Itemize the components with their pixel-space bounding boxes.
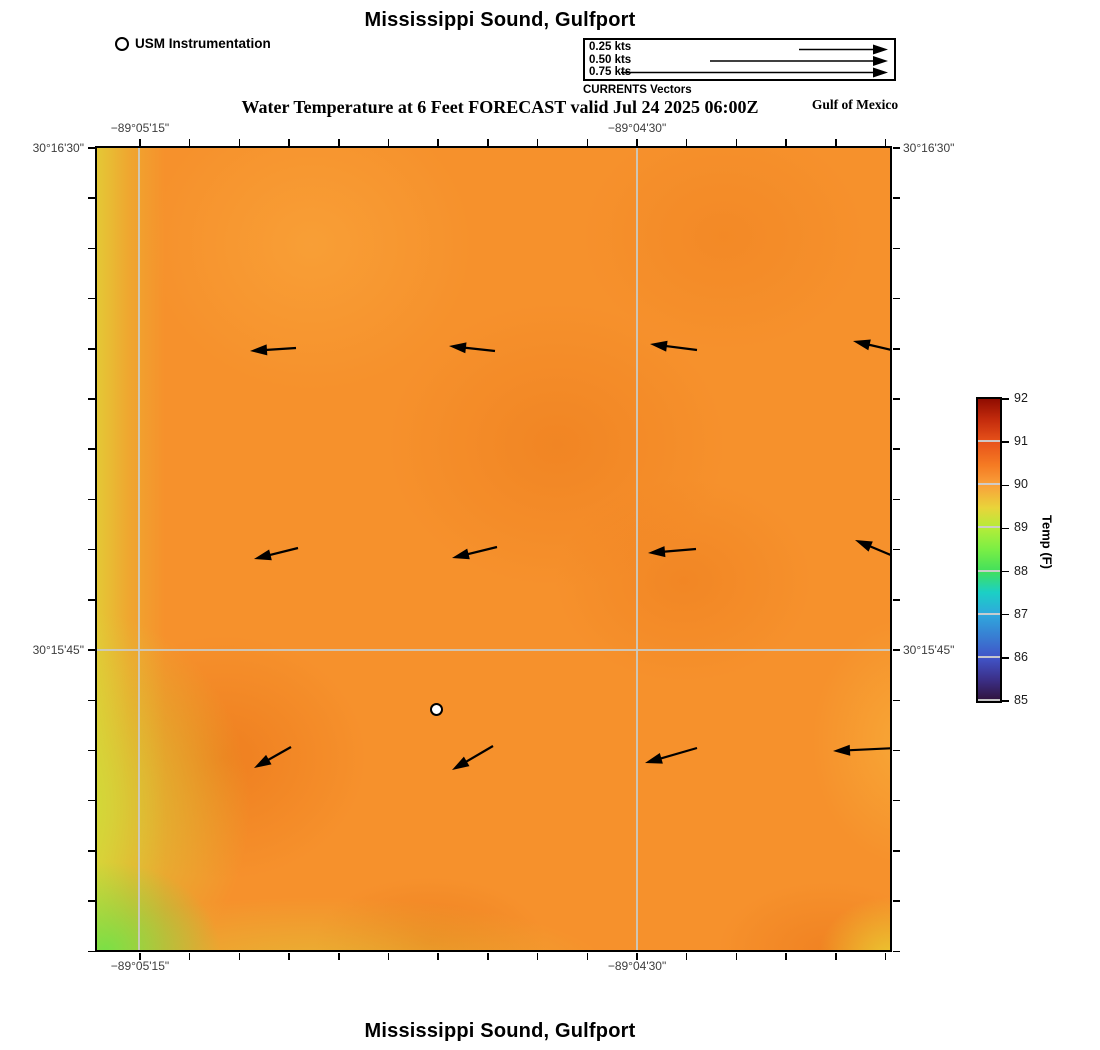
axis-tick — [88, 599, 95, 601]
axis-tick — [893, 549, 900, 551]
axis-tick — [288, 953, 290, 960]
colorbar-gridline — [978, 526, 1000, 528]
axis-tick — [88, 549, 95, 551]
colorbar-tick — [1002, 700, 1009, 702]
vector-head — [833, 744, 850, 755]
axis-tick — [893, 398, 900, 400]
axis-tick — [893, 850, 900, 852]
axis-tick — [893, 700, 900, 702]
y-axis-tick-label: 30°15'45" — [0, 643, 84, 657]
colorbar-tick — [1002, 485, 1009, 487]
bottom-title: Mississippi Sound, Gulfport — [0, 1020, 1000, 1043]
axis-tick — [893, 298, 900, 300]
axis-tick — [785, 953, 787, 960]
axis-tick — [893, 147, 900, 149]
colorbar-gridline — [978, 483, 1000, 485]
colorbar-gridline — [978, 440, 1000, 442]
vector-head — [254, 754, 271, 767]
vector-legend-arrows — [585, 40, 894, 79]
axis-tick — [893, 649, 900, 651]
axis-tick — [88, 448, 95, 450]
x-axis-tick-label: −89°04'30" — [577, 121, 697, 135]
colorbar — [976, 397, 1002, 703]
axis-tick — [88, 800, 95, 802]
axis-tick — [88, 649, 95, 651]
axis-tick — [487, 953, 489, 960]
vector-head — [853, 339, 871, 350]
vector-head — [648, 546, 665, 557]
axis-tick — [537, 139, 539, 146]
colorbar-tick — [1002, 571, 1009, 573]
axis-tick — [636, 139, 638, 146]
axis-tick — [239, 139, 241, 146]
station-circle-icon — [115, 37, 129, 51]
station-legend: USM Instrumentation — [115, 36, 271, 51]
x-axis-tick-label: −89°04'30" — [577, 959, 697, 973]
axis-tick — [139, 139, 141, 146]
axis-tick — [88, 750, 95, 752]
colorbar-gridline — [978, 699, 1000, 701]
axis-tick — [893, 900, 900, 902]
axis-tick — [736, 953, 738, 960]
axis-tick — [893, 499, 900, 501]
axis-tick — [785, 139, 787, 146]
axis-tick — [893, 800, 900, 802]
vector-head — [855, 540, 873, 552]
colorbar-tick-label: 92 — [1014, 391, 1044, 405]
usm-station-marker — [430, 703, 443, 716]
axis-tick — [587, 139, 589, 146]
colorbar-tick-label: 87 — [1014, 607, 1044, 621]
axis-tick — [189, 139, 191, 146]
vector-head — [873, 45, 888, 55]
axis-tick — [88, 197, 95, 199]
colorbar-tick — [1002, 528, 1009, 530]
colorbar-tick-label: 88 — [1014, 564, 1044, 578]
axis-tick — [736, 139, 738, 146]
colorbar-gridline — [978, 570, 1000, 572]
axis-tick — [338, 953, 340, 960]
axis-tick — [686, 139, 688, 146]
currents-vectors-caption: CURRENTS Vectors — [583, 84, 692, 96]
axis-tick — [388, 953, 390, 960]
temperature-map — [95, 146, 892, 952]
colorbar-tick-label: 86 — [1014, 650, 1044, 664]
colorbar-tick-label: 89 — [1014, 520, 1044, 534]
axis-tick — [893, 448, 900, 450]
axis-tick — [537, 953, 539, 960]
axis-tick — [893, 750, 900, 752]
station-legend-label: USM Instrumentation — [135, 36, 271, 51]
axis-tick — [338, 139, 340, 146]
colorbar-tick-label: 85 — [1014, 693, 1044, 707]
vector-head — [449, 342, 466, 353]
axis-tick — [88, 850, 95, 852]
axis-tick — [88, 700, 95, 702]
axis-tick — [88, 298, 95, 300]
y-axis-tick-label: 30°15'45" — [903, 643, 993, 657]
forecast-figure: Mississippi Sound, Gulfport USM Instrume… — [0, 0, 1100, 1050]
axis-tick — [88, 499, 95, 501]
vector-head — [645, 753, 663, 764]
axis-tick — [487, 139, 489, 146]
vector-head — [873, 56, 888, 66]
colorbar-tick — [1002, 614, 1009, 616]
axis-tick — [835, 139, 837, 146]
colorbar-tick-label: 90 — [1014, 477, 1044, 491]
axis-tick — [88, 147, 95, 149]
axis-tick — [893, 951, 900, 953]
axis-tick — [437, 953, 439, 960]
axis-tick — [88, 248, 95, 250]
axis-tick — [893, 197, 900, 199]
axis-tick — [893, 599, 900, 601]
axis-tick — [893, 348, 900, 350]
page-title: Mississippi Sound, Gulfport — [0, 9, 1000, 32]
current-vector-layer — [97, 148, 890, 950]
axis-tick — [437, 139, 439, 146]
vector-head — [250, 344, 267, 355]
axis-tick — [239, 953, 241, 960]
vector-head — [254, 549, 272, 560]
axis-tick — [893, 248, 900, 250]
colorbar-tick-label: 91 — [1014, 434, 1044, 448]
axis-tick — [885, 953, 887, 960]
axis-tick — [885, 139, 887, 146]
axis-tick — [88, 900, 95, 902]
axis-tick — [88, 398, 95, 400]
x-axis-tick-label: −89°05'15" — [80, 959, 200, 973]
region-label: Gulf of Mexico — [780, 97, 930, 113]
vector-head — [452, 756, 469, 769]
y-axis-tick-label: 30°16'30" — [903, 141, 993, 155]
colorbar-tick — [1002, 441, 1009, 443]
axis-tick — [88, 951, 95, 953]
vector-head — [650, 340, 668, 351]
axis-tick — [288, 139, 290, 146]
vector-head — [452, 548, 470, 559]
colorbar-tick — [1002, 398, 1009, 400]
axis-tick — [88, 348, 95, 350]
y-axis-tick-label: 30°16'30" — [0, 141, 84, 155]
colorbar-gridline — [978, 613, 1000, 615]
x-axis-tick-label: −89°05'15" — [80, 121, 200, 135]
vector-head — [873, 68, 888, 78]
axis-tick — [835, 953, 837, 960]
currents-vector-legend: 0.25 kts0.50 kts0.75 kts — [583, 38, 896, 81]
colorbar-tick — [1002, 657, 1009, 659]
axis-tick — [388, 139, 390, 146]
